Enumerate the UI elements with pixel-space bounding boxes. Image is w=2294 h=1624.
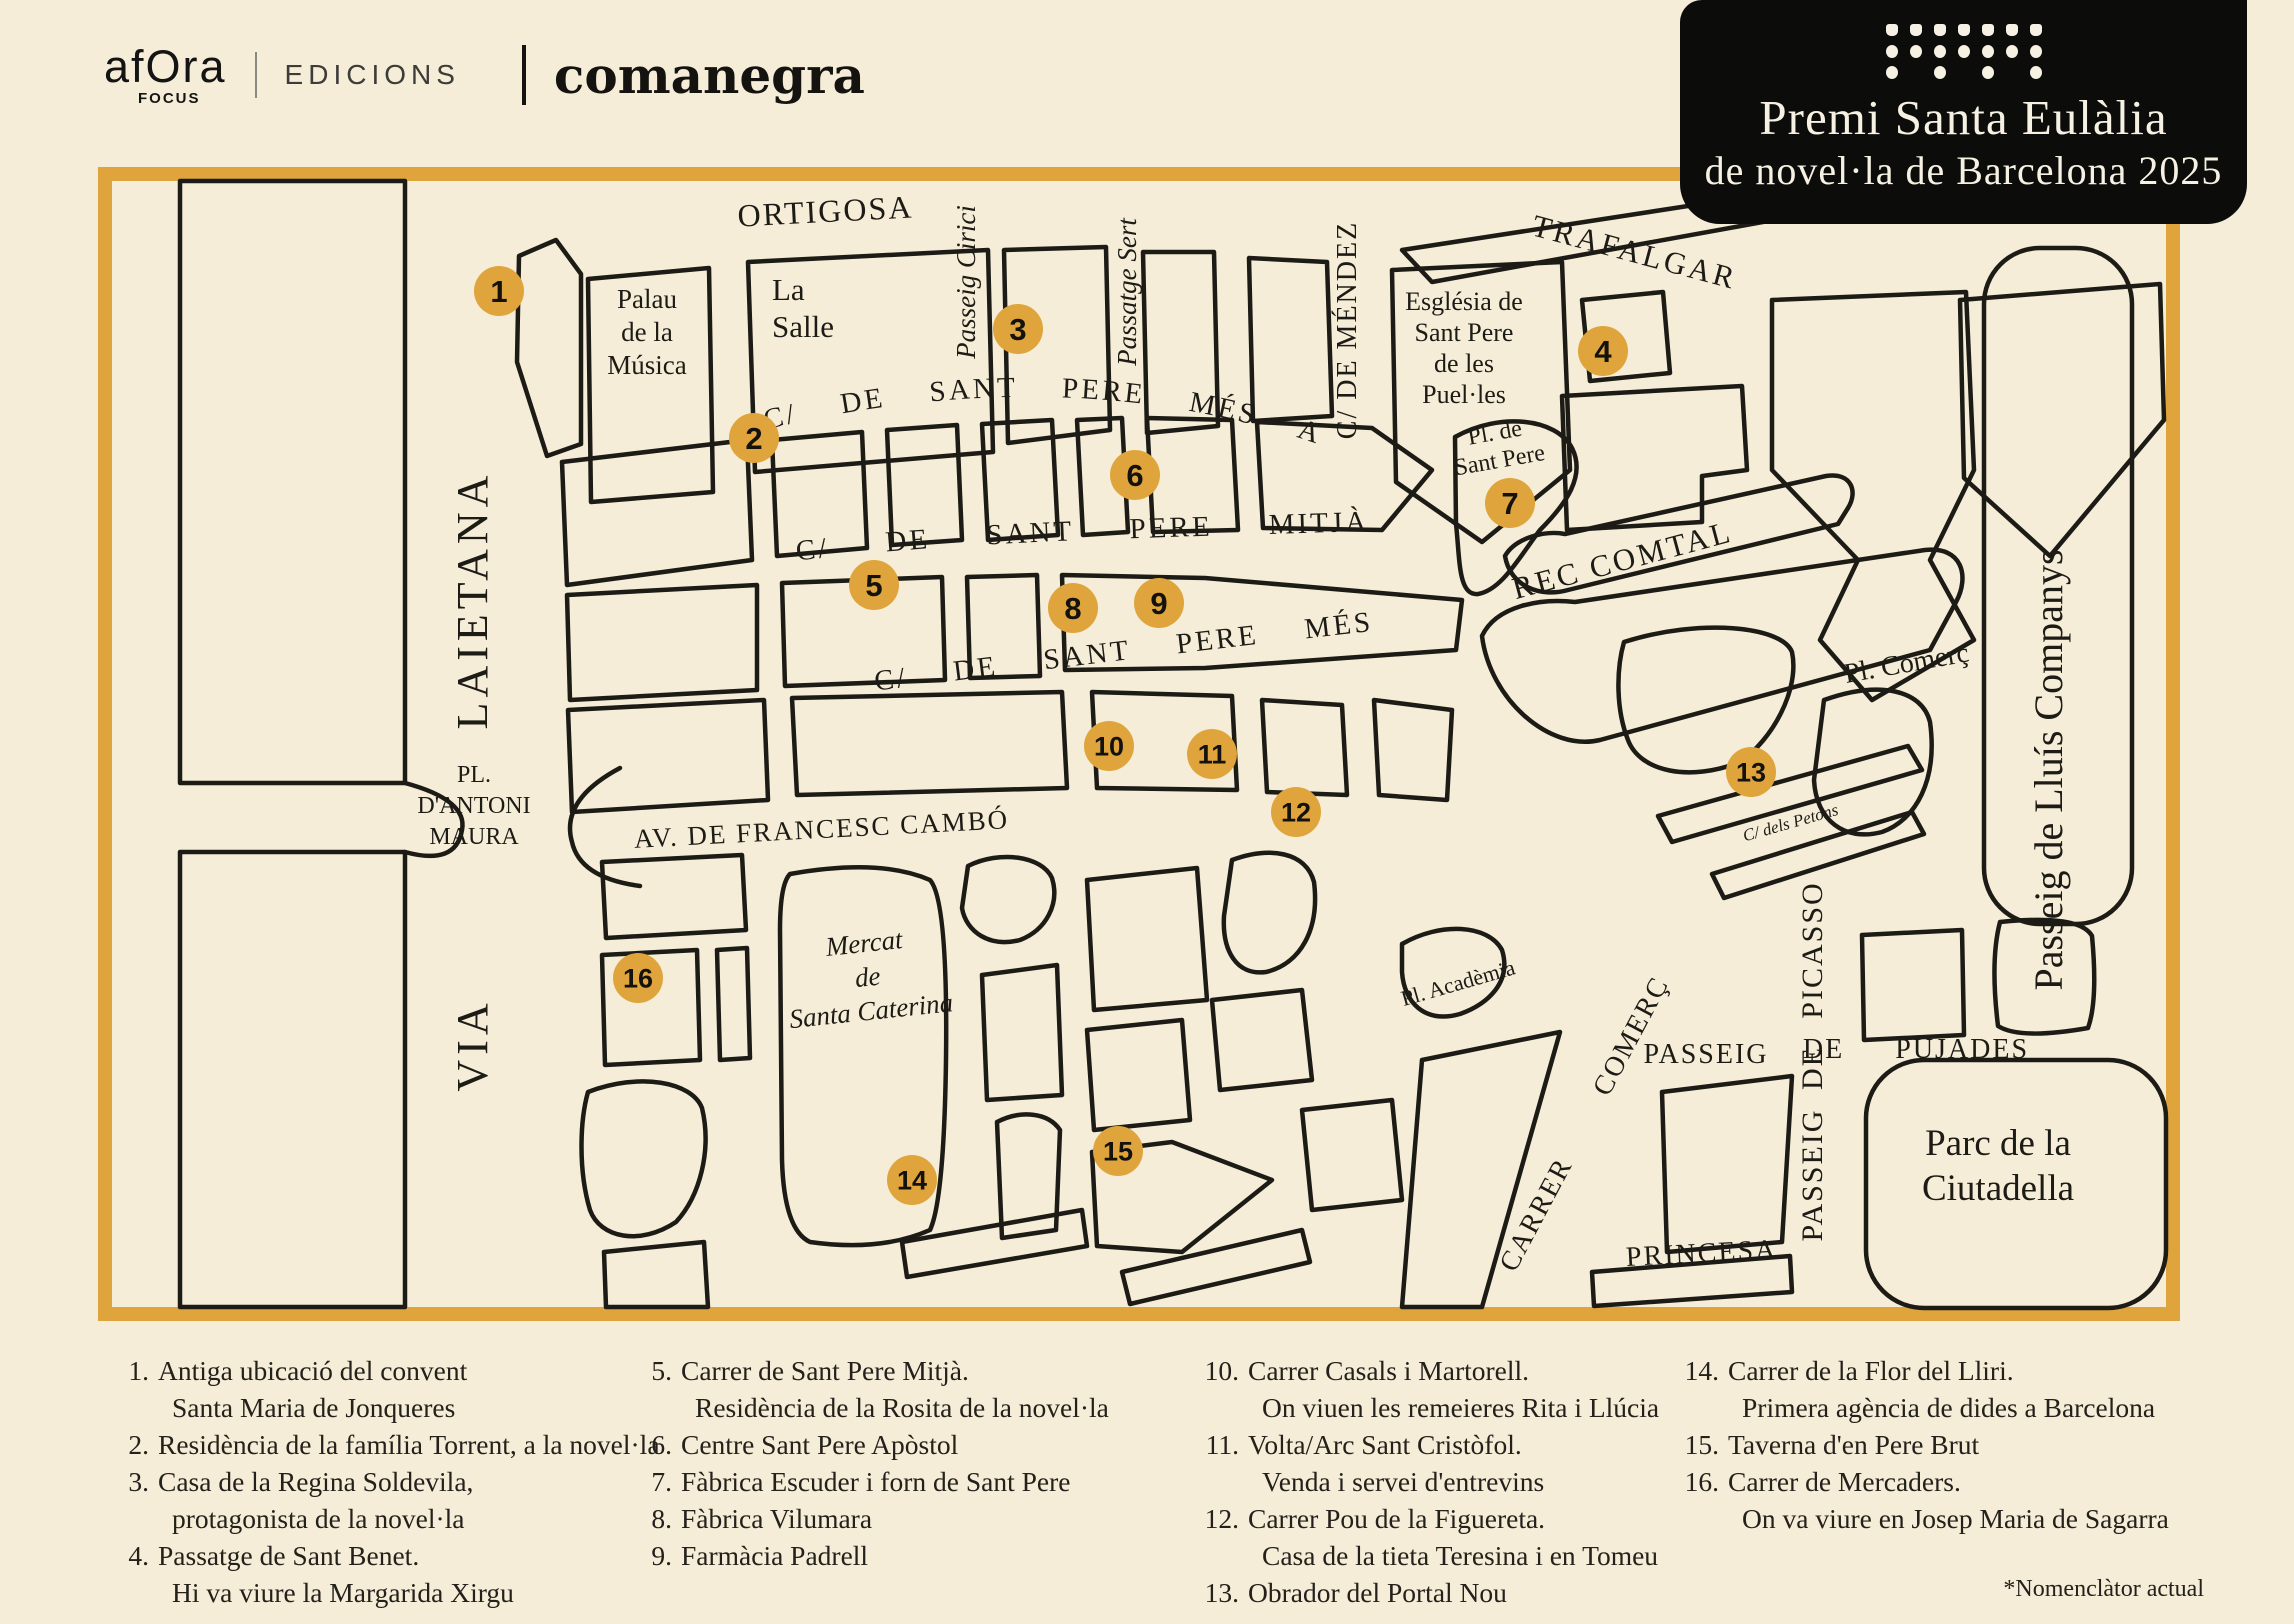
legend-item-number [122, 1574, 158, 1611]
map-marker-1: 1 [474, 266, 524, 316]
legend-item-line: 5.Carrer de Sant Pere Mitjà. [645, 1352, 1109, 1389]
legend-item-text: Obrador del Portal Nou [1248, 1574, 1507, 1611]
legend-item-line: On va viure en Josep Maria de Sagarra [1676, 1500, 2169, 1537]
legend-item-text: Farmàcia Padrell [681, 1537, 868, 1574]
legend-item-number [1676, 1500, 1728, 1537]
legend-item-text: On viuen les remeieres Rita i Llúcia [1248, 1389, 1659, 1426]
marker-number: 16 [623, 964, 653, 994]
street-label-princesa: PRINCESA [1625, 1234, 1778, 1273]
legend-item-number: 2. [122, 1426, 158, 1463]
legend-item-line: 9.Farmàcia Padrell [645, 1537, 1109, 1574]
marker-number: 4 [1594, 334, 1612, 369]
dot [1958, 45, 1970, 58]
legend-item-number: 5. [645, 1352, 681, 1389]
dot [1934, 66, 1946, 79]
award-badge: Premi Santa Eulàlia de novel·la de Barce… [1680, 0, 2247, 224]
street-label-passeig-cirici: Passeig Cirici [951, 205, 981, 360]
legend-item-line: 8.Fàbrica Vilumara [645, 1500, 1109, 1537]
legend-item-line: 10.Carrer Casals i Martorell. [1196, 1352, 1659, 1389]
dot [1934, 45, 1946, 58]
dot [1958, 66, 1970, 79]
map-marker-8: 8 [1048, 583, 1098, 633]
legend-item-number: 13. [1196, 1574, 1248, 1611]
place-label-palau-musica: Palaude laMúsica [607, 284, 687, 380]
legend-column-4: 14.Carrer de la Flor del Lliri.Primera a… [1676, 1352, 2169, 1537]
legend-item-text: On va viure en Josep Maria de Sagarra [1728, 1500, 2169, 1537]
marker-number: 14 [897, 1166, 927, 1196]
map-marker-13: 13 [1726, 747, 1776, 797]
legend-item-number: 10. [1196, 1352, 1248, 1389]
street-label-passeig-lluis-companys: Passeig de Lluís Companys [2026, 549, 2071, 990]
map-marker-16: 16 [613, 953, 663, 1003]
legend-item-text: Primera agència de dides a Barcelona [1728, 1389, 2155, 1426]
street-label-laietana: LAIETANA [448, 471, 497, 730]
legend-item-text: protagonista de la novel·la [158, 1500, 464, 1537]
dot [2030, 45, 2042, 58]
legend-item-number [645, 1389, 681, 1426]
street-label-de-pujades: DE PUJADES [1803, 1034, 2029, 1065]
map-marker-5: 5 [849, 560, 899, 610]
street-label-picasso: PICASSO [1796, 881, 1829, 1018]
street-label-via: VIA [448, 998, 497, 1091]
dot [1886, 45, 1898, 58]
dot [2030, 66, 2042, 79]
map-marker-14: 14 [887, 1155, 937, 1205]
legend-item-number [1196, 1389, 1248, 1426]
dot [1910, 66, 1922, 79]
legend-item-line: Casa de la tieta Teresina i en Tomeu [1196, 1537, 1659, 1574]
marker-number: 13 [1736, 758, 1766, 788]
map-marker-3: 3 [993, 304, 1043, 354]
legend-item-text: Carrer Pou de la Figuereta. [1248, 1500, 1545, 1537]
legend-item-line: 3.Casa de la Regina Soldevila, [122, 1463, 660, 1500]
dot [1982, 24, 1994, 36]
dot [1886, 24, 1898, 36]
place-label-esglesia-sant-pere: Església deSant Perede lesPuel·les [1405, 287, 1523, 409]
legend-item-number: 3. [122, 1463, 158, 1500]
marker-number: 11 [1198, 740, 1227, 770]
legend-column-1: 1.Antiga ubicació del conventSanta Maria… [122, 1352, 660, 1611]
dot [2006, 45, 2018, 58]
map-marker-6: 6 [1110, 450, 1160, 500]
dot [2030, 24, 2042, 36]
legend-item-line: 12.Carrer Pou de la Figuereta. [1196, 1500, 1659, 1537]
street-label-c-de-mendez: C/ DE MÉNDEZ [1332, 221, 1363, 439]
legend-item-line: Primera agència de dides a Barcelona [1676, 1389, 2169, 1426]
map-marker-11: 11 [1187, 729, 1237, 779]
marker-number: 3 [1009, 312, 1026, 347]
legend-item-text: Carrer Casals i Martorell. [1248, 1352, 1529, 1389]
map-marker-15: 15 [1093, 1126, 1143, 1176]
legend-item-line: 4.Passatge de Sant Benet. [122, 1537, 660, 1574]
map-marker-10: 10 [1084, 721, 1134, 771]
legend-item-line: 1.Antiga ubicació del convent [122, 1352, 660, 1389]
legend-item-number: 8. [645, 1500, 681, 1537]
legend-item-text: Hi va viure la Margarida Xirgu [158, 1574, 514, 1611]
legend-item-text: Centre Sant Pere Apòstol [681, 1426, 958, 1463]
map-marker-12: 12 [1271, 787, 1321, 837]
dots-logo-icon [1886, 24, 2042, 79]
marker-number: 6 [1126, 458, 1143, 493]
badge-title-line2: de novel·la de Barcelona 2025 [1705, 151, 2223, 191]
legend-item-text: Fàbrica Vilumara [681, 1500, 872, 1537]
marker-number: 10 [1094, 732, 1124, 762]
dot [1910, 24, 1922, 36]
legend-item-number: 9. [645, 1537, 681, 1574]
legend-item-line: 11.Volta/Arc Sant Cristòfol. [1196, 1426, 1659, 1463]
legend-item-line: 13.Obrador del Portal Nou [1196, 1574, 1659, 1611]
street-label-passatge-sert: Passatge Sert [1112, 217, 1142, 367]
legend-item-line: 2.Residència de la família Torrent, a la… [122, 1426, 660, 1463]
legend-item-line: Residència de la Rosita de la novel·la [645, 1389, 1109, 1426]
legend-item-line: Venda i servei d'entrevins [1196, 1463, 1659, 1500]
street-label-carrer-comerc: CARRER COMERÇ [1494, 971, 1676, 1276]
marker-number: 8 [1064, 591, 1081, 626]
legend-item-text: Carrer de la Flor del Lliri. [1728, 1352, 2014, 1389]
marker-number: 5 [865, 568, 882, 603]
marker-number: 12 [1281, 798, 1311, 828]
poster-page: afOra FOCUS EDICIONS comanegra Premi San… [0, 0, 2294, 1624]
marker-number: 7 [1501, 486, 1518, 521]
legend-item-line: protagonista de la novel·la [122, 1500, 660, 1537]
dot [1934, 24, 1946, 36]
marker-number: 2 [745, 421, 762, 456]
legend-item-number [1196, 1463, 1248, 1500]
legend-item-number: 14. [1676, 1352, 1728, 1389]
legend-item-text: Venda i servei d'entrevins [1248, 1463, 1544, 1500]
dot [1982, 45, 1994, 58]
legend-column-3: 10.Carrer Casals i Martorell.On viuen le… [1196, 1352, 1659, 1611]
marker-number: 1 [490, 274, 507, 309]
legend-item-text: Fàbrica Escuder i forn de Sant Pere [681, 1463, 1070, 1500]
place-label-mercat-santa-caterina: MercatdeSanta Caterina [781, 920, 955, 1035]
legend-item-text: Casa de la tieta Teresina i en Tomeu [1248, 1537, 1658, 1574]
legend-item-line: Hi va viure la Margarida Xirgu [122, 1574, 660, 1611]
street-label-av-cambo: AV. DE FRANCESC CAMBÓ [633, 804, 1010, 854]
map-marker-4: 4 [1578, 326, 1628, 376]
legend-item-line: 14.Carrer de la Flor del Lliri. [1676, 1352, 2169, 1389]
map-marker-9: 9 [1134, 578, 1184, 628]
marker-number: 9 [1150, 586, 1167, 621]
legend-item-text: Casa de la Regina Soldevila, [158, 1463, 473, 1500]
map-marker-7: 7 [1485, 478, 1535, 528]
badge-title-line1: Premi Santa Eulàlia [1759, 93, 2167, 142]
street-label-pl-academia: Pl. Acadèmia [1398, 955, 1518, 1011]
legend-item-text: Taverna d'en Pere Brut [1728, 1426, 1979, 1463]
marker-number: 15 [1103, 1137, 1133, 1167]
legend-item-text: Antiga ubicació del convent [158, 1352, 467, 1389]
street-label-passeig-horizontal: PASSEIG [1643, 1039, 1768, 1070]
legend-item-line: Santa Maria de Jonqueres [122, 1389, 660, 1426]
street-label-passeig-vertical: PASSEIG [1796, 1109, 1829, 1242]
legend-item-line: 15.Taverna d'en Pere Brut [1676, 1426, 2169, 1463]
legend-item-text: Volta/Arc Sant Cristòfol. [1248, 1426, 1522, 1463]
legend-item-text: Residència de la Rosita de la novel·la [681, 1389, 1109, 1426]
dot [2006, 24, 2018, 36]
map-marker-2: 2 [729, 413, 779, 463]
place-label-la-salle: LaSalle [772, 272, 834, 344]
place-label-parc-ciutadella: Parc de laCiutadella [1922, 1123, 2074, 1209]
legend-item-number [1196, 1537, 1248, 1574]
legend-item-text: Carrer de Mercaders. [1728, 1463, 1961, 1500]
legend-item-line: 6.Centre Sant Pere Apòstol [645, 1426, 1109, 1463]
legend-item-number: 6. [645, 1426, 681, 1463]
legend-item-number: 4. [122, 1537, 158, 1574]
legend-item-text: Carrer de Sant Pere Mitjà. [681, 1352, 969, 1389]
legend-item-number: 15. [1676, 1426, 1728, 1463]
legend-item-number: 16. [1676, 1463, 1728, 1500]
legend-item-number: 1. [122, 1352, 158, 1389]
legend-item-text: Residència de la família Torrent, a la n… [158, 1426, 660, 1463]
legend-item-number: 11. [1196, 1426, 1248, 1463]
place-label-pl-antoni-maura: PL.D'ANTONIMAURA [417, 762, 530, 850]
legend-item-number: 7. [645, 1463, 681, 1500]
legend-item-number [122, 1389, 158, 1426]
dot [1910, 45, 1922, 58]
city-blocks [180, 174, 2166, 1308]
legend-item-text: Santa Maria de Jonqueres [158, 1389, 455, 1426]
legend-item-number: 12. [1196, 1500, 1248, 1537]
dot [2006, 66, 2018, 79]
legend-footnote: *Nomenclàtor actual [2003, 1576, 2204, 1603]
legend-item-line: 7.Fàbrica Escuder i forn de Sant Pere [645, 1463, 1109, 1500]
dot [1958, 24, 1970, 36]
legend-item-text: Passatge de Sant Benet. [158, 1537, 419, 1574]
legend-item-line: 16.Carrer de Mercaders. [1676, 1463, 2169, 1500]
street-label-ortigosa: ORTIGOSA [737, 188, 915, 233]
legend-item-number [1676, 1389, 1728, 1426]
dot [1886, 66, 1898, 79]
dot [1982, 66, 1994, 79]
legend-item-number [122, 1500, 158, 1537]
legend-column-2: 5.Carrer de Sant Pere Mitjà.Residència d… [645, 1352, 1109, 1574]
legend-item-line: On viuen les remeieres Rita i Llúcia [1196, 1389, 1659, 1426]
